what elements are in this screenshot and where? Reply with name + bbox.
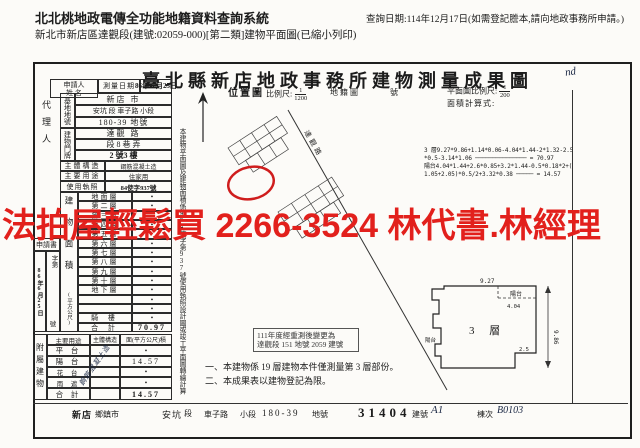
- footer-section-label: 段: [184, 408, 192, 419]
- attached-total-label: 合 計: [47, 388, 90, 400]
- floor-plan: 9.27 陽台 4.04 9.86 2.5 陽台 3 層: [424, 256, 574, 398]
- footer-subsection-label: 小段: [240, 409, 256, 420]
- usage-value: 住家用: [105, 171, 172, 181]
- area-unit-label: (平方公尺): [65, 292, 73, 330]
- attached-building-label: 附屬建物: [33, 334, 47, 400]
- attached-row-value: •: [120, 345, 172, 356]
- applicant-label-1: 申請人: [64, 81, 85, 89]
- usage-label: 主要用途: [60, 171, 105, 181]
- footer-parcel-label: 地號: [312, 409, 328, 420]
- address-road-row: 達觀 路: [75, 128, 172, 139]
- attached-header-usage: 主要用途: [47, 334, 90, 345]
- area-row-label: 第十層: [78, 276, 132, 285]
- resurvey-stamp: 111年度經重測後變更為 達觀段 151 地號 2059 建號: [253, 328, 359, 352]
- area-row-value: •: [132, 313, 172, 323]
- note-line-1: 一、本建物係 19 層建物本件僅測量第 3 層部份。: [205, 360, 399, 373]
- footer-town-label: 鄉鎮市: [95, 409, 119, 420]
- area-row-value: •: [132, 285, 172, 295]
- system-title: 北北桃地政電傳全功能地籍資料查詢系統: [35, 8, 269, 27]
- red-advertisement-overlay: 法拍屋輕鬆買 2266-3524 林代書.林經理: [2, 198, 640, 247]
- survey-date-label: 測量日期: [98, 79, 140, 93]
- balcony-label: 陽台: [510, 290, 522, 298]
- application-date: 86年6月25日: [33, 251, 46, 332]
- area-row-value: •: [132, 267, 172, 276]
- site-parcel-label: 基地地號: [60, 93, 75, 128]
- stamp-line-2: 達觀段 151 地號 2059 建號: [257, 340, 355, 349]
- right-dimension-label: 9.86: [552, 330, 559, 345]
- attached-row-label: 平 台: [47, 345, 90, 356]
- area-row-label: [78, 304, 132, 313]
- document-subtitle: 新北市新店區達觀段(建號:02059-000)[第二類]建物平面圖(已縮小列印): [35, 27, 356, 42]
- top-dimension-label: 9.27: [480, 278, 495, 285]
- area-row-value: •: [132, 304, 172, 313]
- site-section-row: 安坑 段 車子路 小段: [75, 105, 172, 117]
- footer-section: 安坑: [162, 408, 182, 421]
- footer-town: 新店: [72, 408, 92, 421]
- agent-label: 代理人: [40, 100, 53, 162]
- scanned-survey-document: { "header": { "system_title": "北北桃地政電傳全功…: [0, 0, 640, 448]
- footer-building-number-handwriting: A1: [431, 404, 443, 416]
- area-row-value: •: [132, 248, 172, 257]
- attached-row-value: 14.57: [120, 356, 172, 367]
- license-label: 使用執照: [60, 181, 105, 192]
- left-balcony-label: 陽台: [425, 336, 437, 344]
- site-parcel-row: 180-39 地號: [75, 117, 172, 128]
- application-number-box: 字第 號: [46, 251, 60, 332]
- attached-row-label: 陽 台: [47, 356, 90, 367]
- structure-label: 主體構造: [60, 161, 105, 171]
- attached-row-value: •: [120, 377, 172, 388]
- area-total-label: 合 計: [78, 323, 132, 332]
- handwritten-mark: nd: [564, 65, 577, 78]
- area-total-value: 70.97: [132, 323, 172, 332]
- structure-value: 鋼筋混凝土造: [105, 161, 172, 171]
- footer-subsection: 車子路: [204, 409, 228, 420]
- footer-parcel: 180-39: [262, 408, 300, 418]
- attached-header-area: 面(平方公尺)積: [120, 334, 172, 345]
- area-row-label: 地下層: [78, 285, 132, 295]
- area-row-label: 第七層: [78, 248, 132, 257]
- balcony-dimension-label: 4.04: [507, 304, 521, 310]
- site-city-row: 新店 市: [75, 93, 172, 105]
- right-dimension-line: [545, 286, 551, 368]
- survey-date-value: 86年 6.月25日: [140, 79, 172, 93]
- attached-row-value: •: [120, 367, 172, 377]
- stamp-line-1: 111年度經重測後變更為: [257, 331, 355, 340]
- address-label: 建物門牌: [60, 128, 75, 161]
- area-row-value: •: [132, 276, 172, 285]
- application-word-label: 字第: [48, 255, 58, 268]
- area-row-value: •: [132, 295, 172, 304]
- floor-label: 3 層: [469, 324, 506, 337]
- footer-block-handwriting: B0103: [497, 405, 523, 416]
- area-row-value: •: [132, 257, 172, 267]
- address-lane-row: 段 8 巷 弄: [75, 139, 172, 150]
- area-row-label: 騎 樓: [78, 313, 132, 323]
- area-row-label: [78, 295, 132, 304]
- query-date: 查詢日期:114年12月17日(如需登記謄本,請向地政事務所申請。): [366, 11, 624, 25]
- attached-row-structure: [90, 388, 120, 400]
- address-number-row: 2 號3 樓: [75, 150, 172, 161]
- attached-total-value: 14.57: [120, 388, 172, 400]
- footer-divider: [33, 403, 628, 404]
- notch-dimension-label: 2.5: [519, 347, 529, 353]
- application-no-label: 號: [50, 318, 57, 328]
- note-line-2: 二、本成果表以建物登記為限。: [205, 374, 331, 387]
- license-value: 84使字937號: [105, 181, 172, 192]
- north-arrow-icon: [198, 92, 208, 142]
- attached-row-structure: [90, 377, 120, 388]
- footer-block-label: 棟次: [477, 409, 493, 420]
- footer-building-number-label: 建號: [412, 409, 428, 420]
- area-row-label: 第八層: [78, 257, 132, 267]
- footer-building-number: 31404: [358, 405, 411, 421]
